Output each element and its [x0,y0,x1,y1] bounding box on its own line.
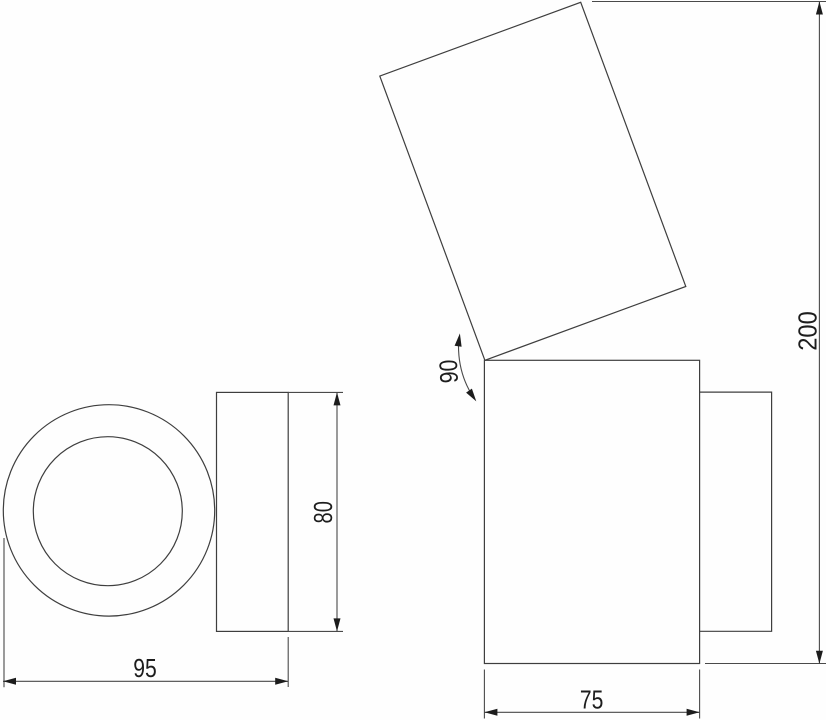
svg-text:95: 95 [133,655,157,683]
svg-text:75: 75 [580,686,604,714]
svg-text:90: 90 [435,359,464,384]
svg-text:80: 80 [310,501,338,523]
svg-text:200: 200 [795,311,823,351]
